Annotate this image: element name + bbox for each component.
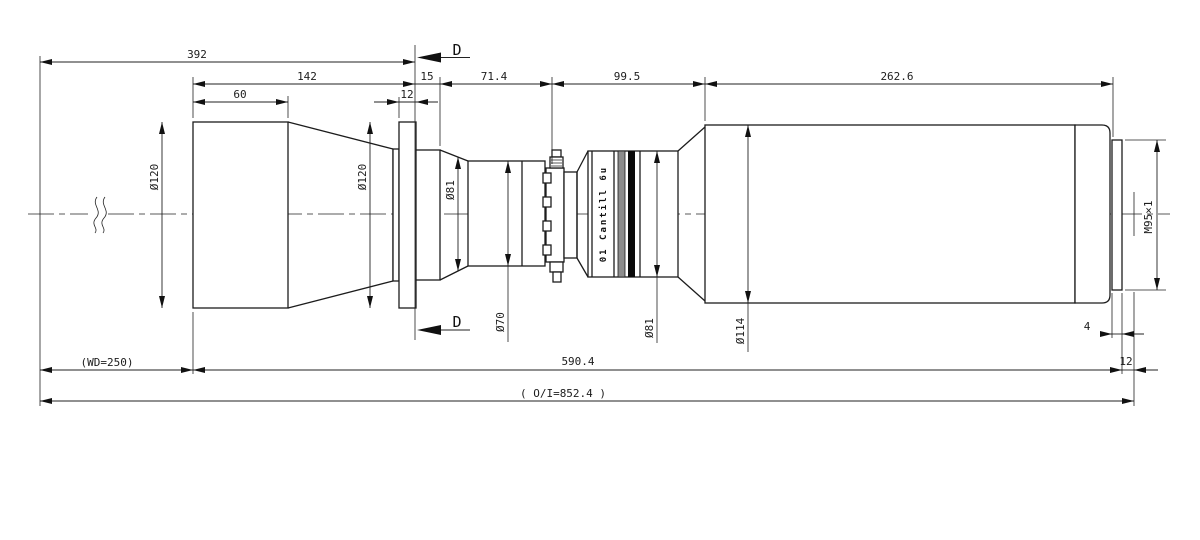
dim-phi81-cone-label: Ø81 bbox=[444, 180, 457, 200]
section-arrow-top bbox=[417, 53, 441, 63]
knurled-screw bbox=[552, 150, 561, 157]
rear-cap bbox=[1075, 125, 1110, 303]
break-squiggle bbox=[102, 197, 106, 233]
section-label-top: D bbox=[452, 41, 461, 59]
dim-oi-label: ( O/I=852.4 ) bbox=[520, 387, 606, 400]
lens-technical-drawing: 01 Cantill 6u D D bbox=[0, 0, 1200, 540]
dim-60-label: 60 bbox=[233, 88, 246, 101]
dim-phi70-label: Ø70 bbox=[494, 312, 507, 332]
dim-142-label: 142 bbox=[297, 70, 317, 83]
clamp-ring-group bbox=[543, 150, 577, 282]
dim-99-label: 99.5 bbox=[614, 70, 641, 83]
barrel-marking-text: 01 Cantill 6u bbox=[598, 166, 609, 262]
marked-barrel-group: 01 Cantill 6u bbox=[577, 151, 678, 277]
dim-392-label: 392 bbox=[187, 48, 207, 61]
break-squiggle bbox=[94, 197, 98, 233]
focus-cylinder bbox=[468, 161, 545, 266]
drawing-canvas: 01 Cantill 6u D D bbox=[0, 0, 1200, 540]
section-label-bottom: D bbox=[452, 313, 461, 331]
dim-wd-label: (WD=250) bbox=[81, 356, 134, 369]
clamp-tab bbox=[543, 245, 551, 255]
dim-12-back-label: 12 bbox=[1119, 355, 1132, 368]
inner-ring bbox=[564, 172, 577, 258]
front-lens-group bbox=[193, 122, 416, 308]
dim-phi81-barrel-label: Ø81 bbox=[643, 318, 656, 338]
dim-590-label: 590.4 bbox=[561, 355, 594, 368]
mount-flange bbox=[399, 122, 416, 308]
clamp-tab bbox=[543, 221, 551, 231]
bottom-screw bbox=[550, 262, 563, 272]
flange-neck bbox=[416, 150, 440, 280]
gray-band bbox=[618, 151, 625, 277]
dim-12-top-label: 12 bbox=[400, 88, 413, 101]
taper-ring bbox=[393, 149, 399, 281]
section-arrow-bottom bbox=[417, 325, 441, 335]
clamp-tab bbox=[543, 197, 551, 207]
clamp-tab bbox=[543, 173, 551, 183]
thread-ring bbox=[1112, 140, 1122, 290]
front-barrel bbox=[193, 122, 288, 308]
dim-4-label: 4 bbox=[1084, 320, 1091, 333]
front-taper bbox=[288, 122, 393, 308]
dim-phi120-front-label: Ø120 bbox=[148, 164, 161, 191]
reducing-cone bbox=[440, 150, 468, 280]
main-barrel-group bbox=[678, 125, 1122, 303]
dim-m95-label: M95×1 bbox=[1142, 200, 1155, 233]
dim-phi114-label: Ø114 bbox=[734, 317, 747, 344]
black-band bbox=[628, 151, 635, 277]
dim-phi120-flange-label: Ø120 bbox=[356, 164, 369, 191]
dim-262-label: 262.6 bbox=[880, 70, 913, 83]
dim-71-label: 71.4 bbox=[481, 70, 508, 83]
dim-15-label: 15 bbox=[420, 70, 433, 83]
main-barrel bbox=[705, 125, 1075, 303]
mid-section-group bbox=[416, 150, 545, 280]
